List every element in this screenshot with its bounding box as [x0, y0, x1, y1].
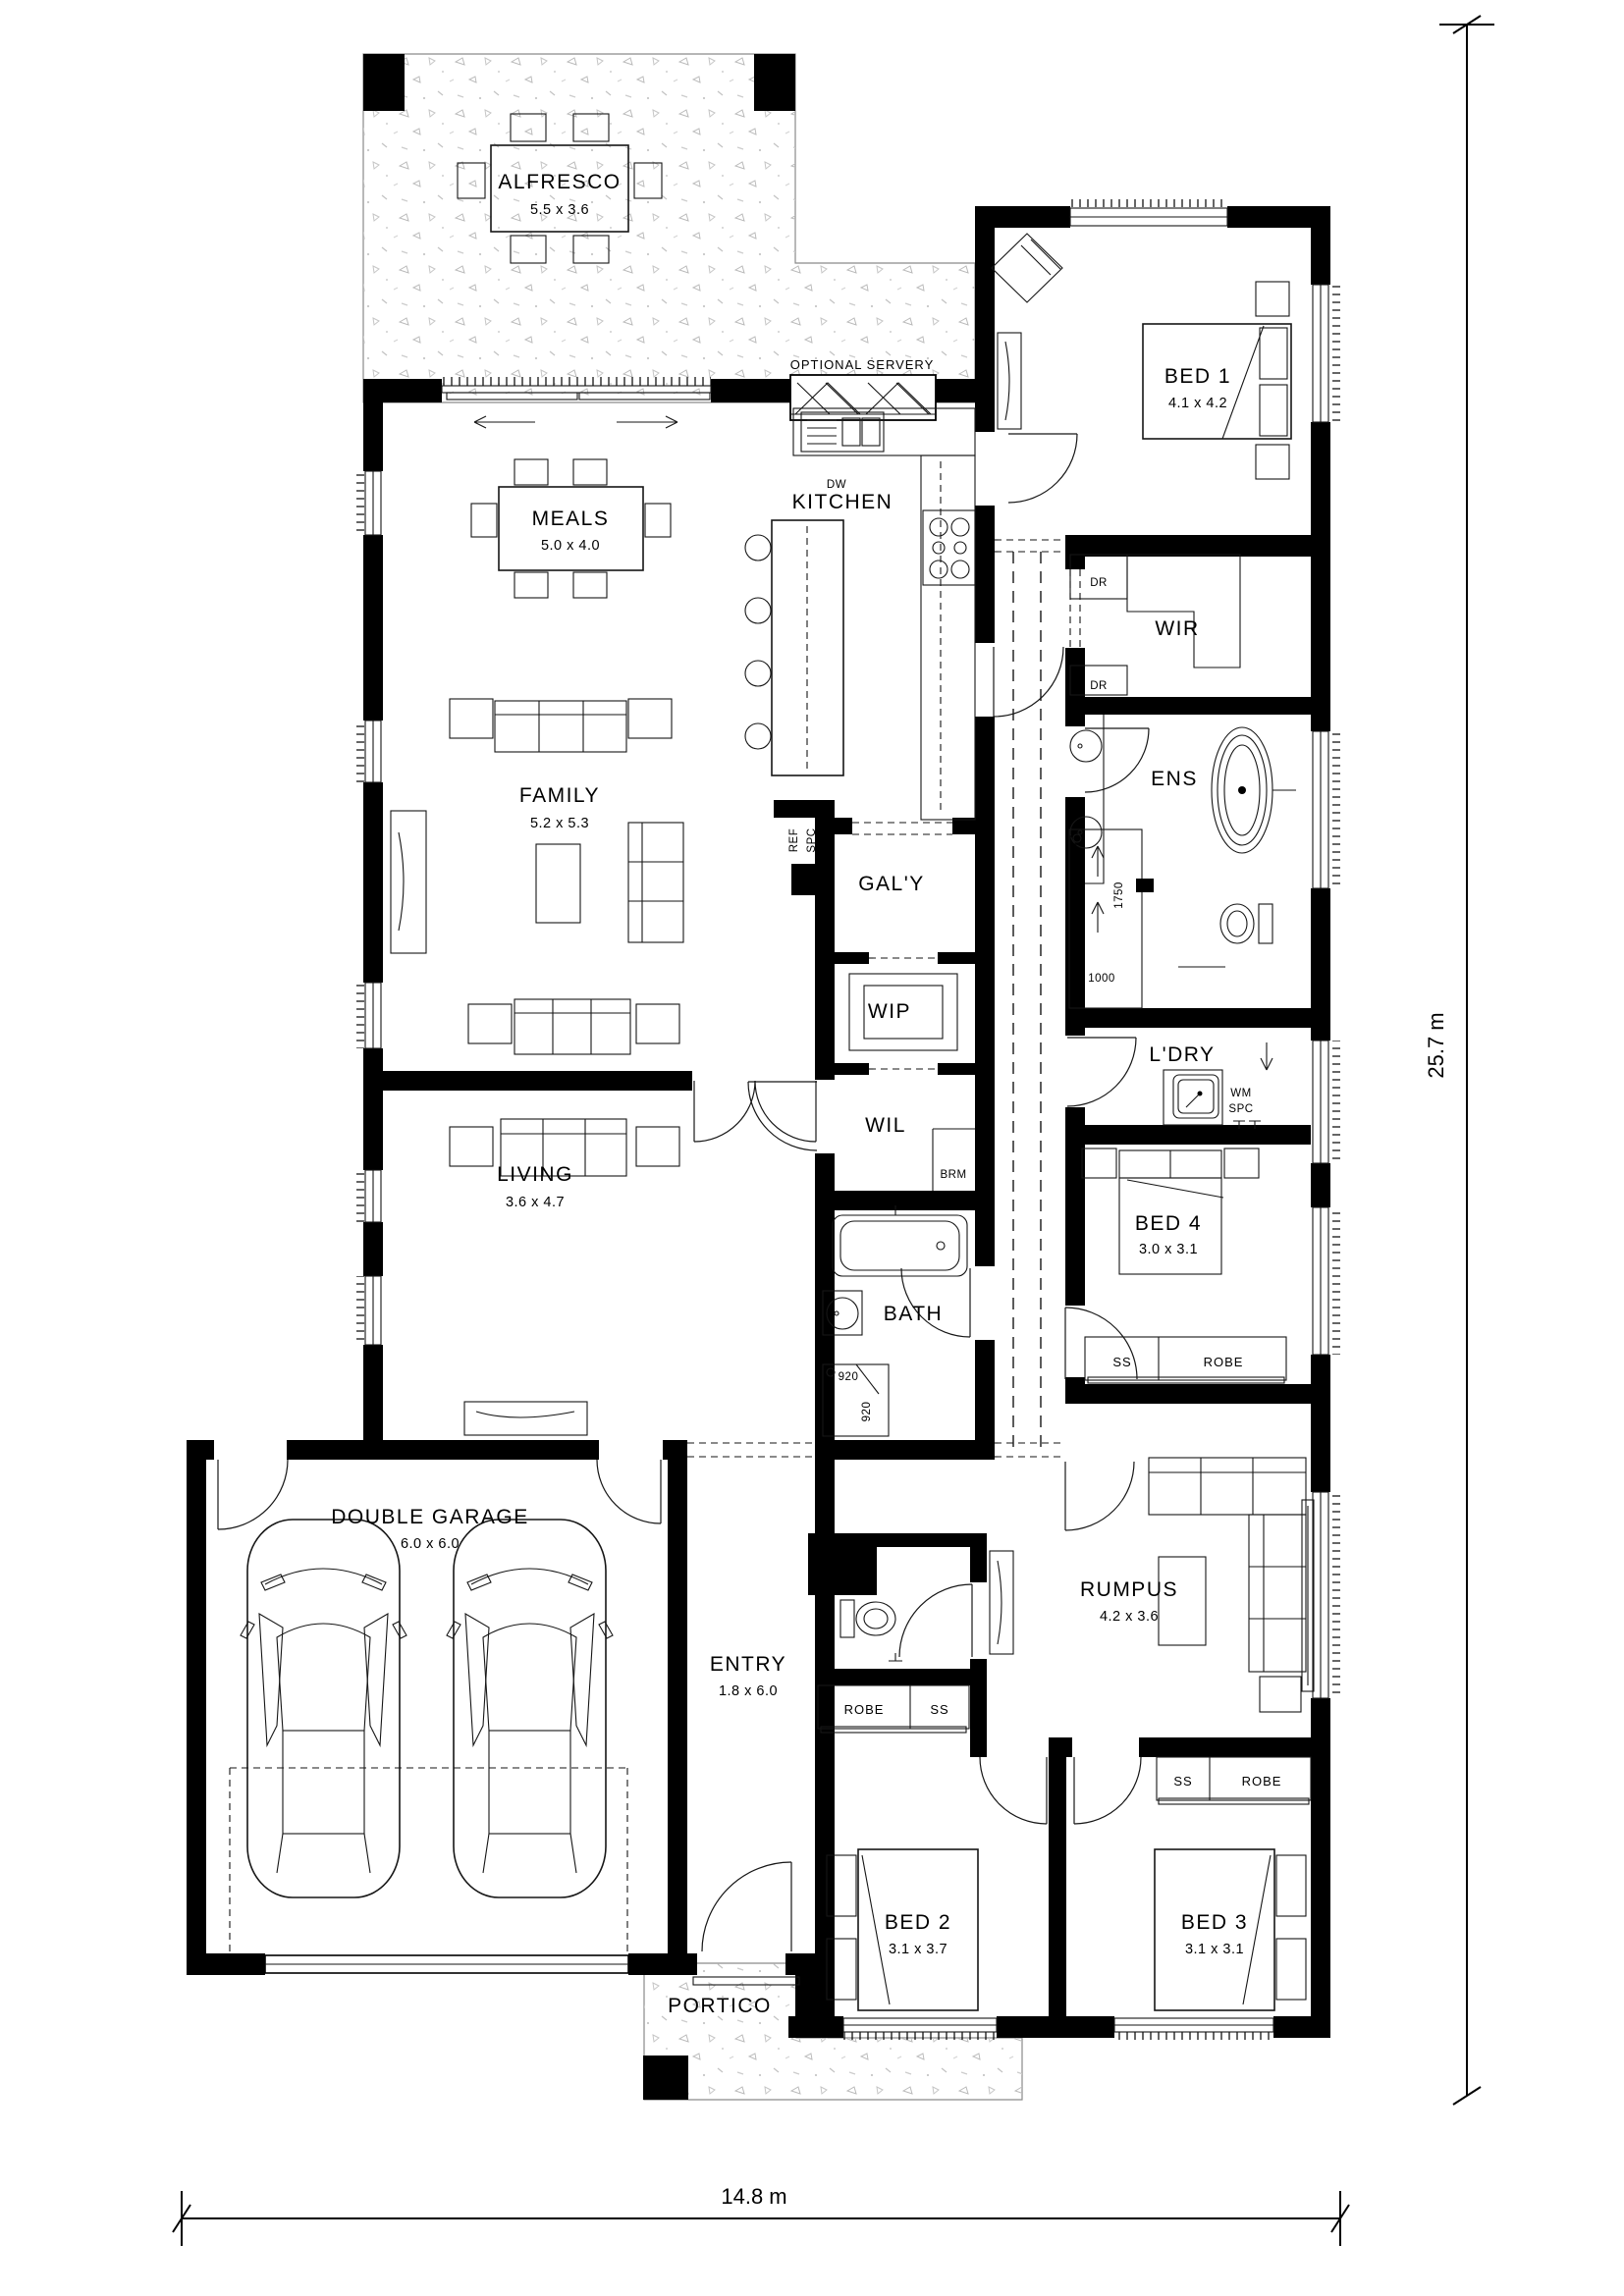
room-label-ens: ENS: [1151, 768, 1198, 790]
room-label-rumpus: RUMPUS: [1080, 1578, 1178, 1601]
floorplan-page: ALFRESCO 5.5 x 3.6 OPTIONAL SERVERY DW K…: [0, 0, 1624, 2296]
label-dr-bottom: DR: [1090, 680, 1108, 692]
label-bed4-ss: SS: [1112, 1355, 1131, 1369]
room-dims-entry: 1.8 x 6.0: [719, 1683, 778, 1699]
label-1000: 1000: [1088, 973, 1115, 985]
room-label-living: LIVING: [497, 1163, 573, 1186]
room-label-wir: WIR: [1155, 617, 1199, 640]
room-dims-alfresco: 5.5 x 3.6: [530, 202, 589, 218]
label-optional-servery: OPTIONAL SERVERY: [790, 357, 935, 372]
room-dims-bed2: 3.1 x 3.7: [889, 1942, 947, 1957]
label-bed3-robe: ROBE: [1242, 1774, 1282, 1789]
room-label-bed1: BED 1: [1164, 365, 1231, 388]
label-dr-top: DR: [1090, 577, 1108, 589]
room-label-bed2: BED 2: [885, 1911, 951, 1934]
room-dims-bed1: 4.1 x 4.2: [1168, 396, 1227, 411]
label-wm-spc: SPC: [1228, 1103, 1253, 1115]
label-ref: REF: [788, 828, 800, 853]
garage-door: [257, 1953, 636, 1975]
alfresco-slab: [363, 54, 975, 402]
label-bed4-robe: ROBE: [1204, 1355, 1244, 1369]
dim-overall-width: 14.8 m: [721, 2184, 786, 2209]
label-dw: DW: [827, 479, 846, 491]
room-label-wip: WIP: [868, 1000, 911, 1023]
label-entry-ss: SS: [930, 1702, 948, 1717]
label-wm: WM: [1230, 1088, 1251, 1099]
furniture-layer: [241, 114, 1314, 2100]
room-label-kitchen: KITCHEN: [792, 491, 893, 513]
label-entry-robe: ROBE: [844, 1702, 885, 1717]
room-label-bath: BATH: [884, 1303, 943, 1325]
room-dims-living: 3.6 x 4.7: [506, 1195, 565, 1210]
room-label-galley: GAL'Y: [858, 873, 925, 895]
room-dims-family: 5.2 x 5.3: [530, 816, 589, 831]
label-920-w: 920: [839, 1371, 859, 1383]
label-1750: 1750: [1113, 881, 1125, 909]
room-label-wil: WIL: [865, 1114, 906, 1137]
room-label-meals: MEALS: [532, 507, 610, 530]
room-label-entry: ENTRY: [710, 1653, 786, 1676]
label-920-d: 920: [861, 1402, 873, 1422]
dim-overall-depth: 25.7 m: [1424, 1012, 1448, 1078]
room-label-portico: PORTICO: [668, 1995, 772, 2017]
room-label-laundry: L'DRY: [1149, 1043, 1215, 1066]
room-label-garage: DOUBLE GARAGE: [331, 1506, 529, 1528]
room-label-alfresco: ALFRESCO: [498, 171, 621, 193]
floor-plan-canvas: ALFRESCO 5.5 x 3.6 OPTIONAL SERVERY DW K…: [0, 0, 1624, 2296]
room-dims-bed4: 3.0 x 3.1: [1139, 1242, 1198, 1257]
windows-layer: [257, 199, 1340, 2040]
labels-layer: ALFRESCO 5.5 x 3.6 OPTIONAL SERVERY DW K…: [331, 171, 1448, 2209]
room-label-bed4: BED 4: [1135, 1212, 1202, 1235]
room-dims-bed3: 3.1 x 3.1: [1185, 1942, 1244, 1957]
label-brm: BRM: [940, 1169, 966, 1181]
label-ref-spc: SPC: [806, 828, 818, 852]
room-dims-garage: 6.0 x 6.0: [401, 1536, 460, 1552]
room-dims-rumpus: 4.2 x 3.6: [1100, 1609, 1159, 1625]
label-bed3-ss: SS: [1173, 1774, 1192, 1789]
room-dims-meals: 5.0 x 4.0: [541, 538, 600, 554]
room-label-family: FAMILY: [519, 784, 600, 807]
servery-window: [790, 375, 936, 420]
room-label-bed3: BED 3: [1181, 1911, 1248, 1934]
